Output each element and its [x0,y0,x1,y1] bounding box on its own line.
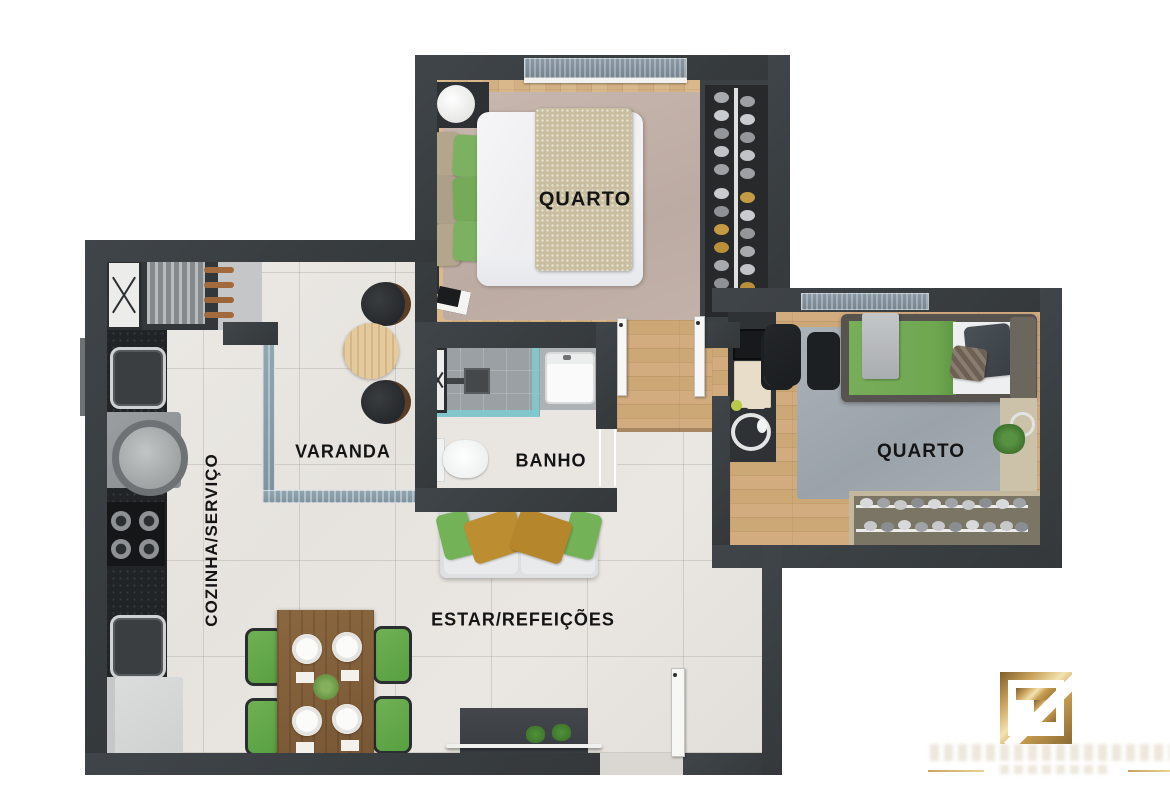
console-plant [552,724,571,741]
stove-burner [139,511,159,531]
laundry-tank-sink [110,347,166,409]
label-bedroom2: QUARTO [877,441,965,463]
bedroom2-headboard [1010,317,1036,400]
stove-burner [111,539,131,559]
balcony-chair [361,380,411,424]
floor-plan: QUARTO VARANDA BANHO QUARTO ESTAR/REFEIÇ… [0,0,1170,785]
watermark-rule-right [1128,770,1170,772]
wall-bedroom1-left [415,55,437,345]
brand-logo [1000,672,1072,744]
window-bedroom2 [801,293,929,310]
dining-chair [373,626,412,684]
wall-outer-left [85,240,107,775]
wall-bedroom2-left [712,396,730,545]
hall-floor-transition [617,428,712,432]
refrigerator [103,677,183,755]
label-living-dining: ESTAR/REFEIÇÕES [431,610,615,631]
toilet-bowl [443,440,488,478]
wall-bathroom-left [415,345,437,488]
window-sill-bedroom1 [524,78,687,83]
tv-shelf [446,744,602,748]
plate [332,632,362,662]
bathroom-door [617,318,627,396]
bathroom-faucet [563,355,571,360]
label-kitchen-service: COZINHA/SERVIÇO [202,453,222,626]
plate [292,706,322,736]
bedroom2-door [694,316,705,397]
washing-machine-door [112,420,188,496]
closet-clothes [714,92,729,103]
shelf-plant [993,424,1025,454]
console-plant [526,726,545,743]
watermark-rule-left [928,770,984,772]
drying-rack [147,262,205,324]
headphone-earcup [757,419,767,433]
wall-bedroom2-right [1040,288,1062,568]
kitchen-sink [110,615,166,679]
drying-rack-handles [204,267,234,273]
label-bathroom: BANHO [516,451,587,472]
bedroom2-pillow-plaid [949,345,988,383]
entry-door [671,668,685,757]
wardrobe-clothes [860,498,873,508]
bathroom-door-threshold [599,429,616,486]
closet-rail [734,88,738,314]
plate [292,634,322,664]
wall-top-left-block [85,240,437,262]
balcony-table [343,323,399,379]
balcony-chair [361,282,411,326]
wall-kitchen-balcony [223,322,278,345]
window-bedroom1 [524,58,687,78]
shower-glass-door [437,410,539,417]
watermark-company-name [930,744,1170,761]
wardrobe-rails [856,505,1028,508]
wall-living-right [762,545,782,775]
table-centerpiece-plant [313,674,339,700]
desk-tray [747,398,765,409]
wall-bathroom-right [596,322,617,429]
stove-burner [111,511,131,531]
wall-bathroom-bottom [415,488,617,512]
napkins [296,672,314,683]
label-balcony: VARANDA [295,442,391,463]
wall-bottom-left [85,753,600,775]
service-duct-hatch [106,260,142,330]
shower-drain [464,368,490,394]
wall-bedroom1-right [768,55,790,312]
balcony-glass-wall-horizontal [262,490,420,503]
shower-glass-panel [532,348,539,417]
balcony-glass-wall-vertical [262,343,275,503]
bedroom1-lamp [437,85,475,123]
plate [332,704,362,734]
label-bedroom1: QUARTO [539,189,631,212]
bedroom2-blanket-gray [862,313,899,379]
desk-ball [731,400,742,411]
watermark-tagline [1000,765,1112,774]
desk-chair [764,324,801,386]
stove-burner [139,539,159,559]
desk-headphones [731,413,771,451]
dining-chair [373,696,412,754]
bathroom-sink [545,352,595,404]
